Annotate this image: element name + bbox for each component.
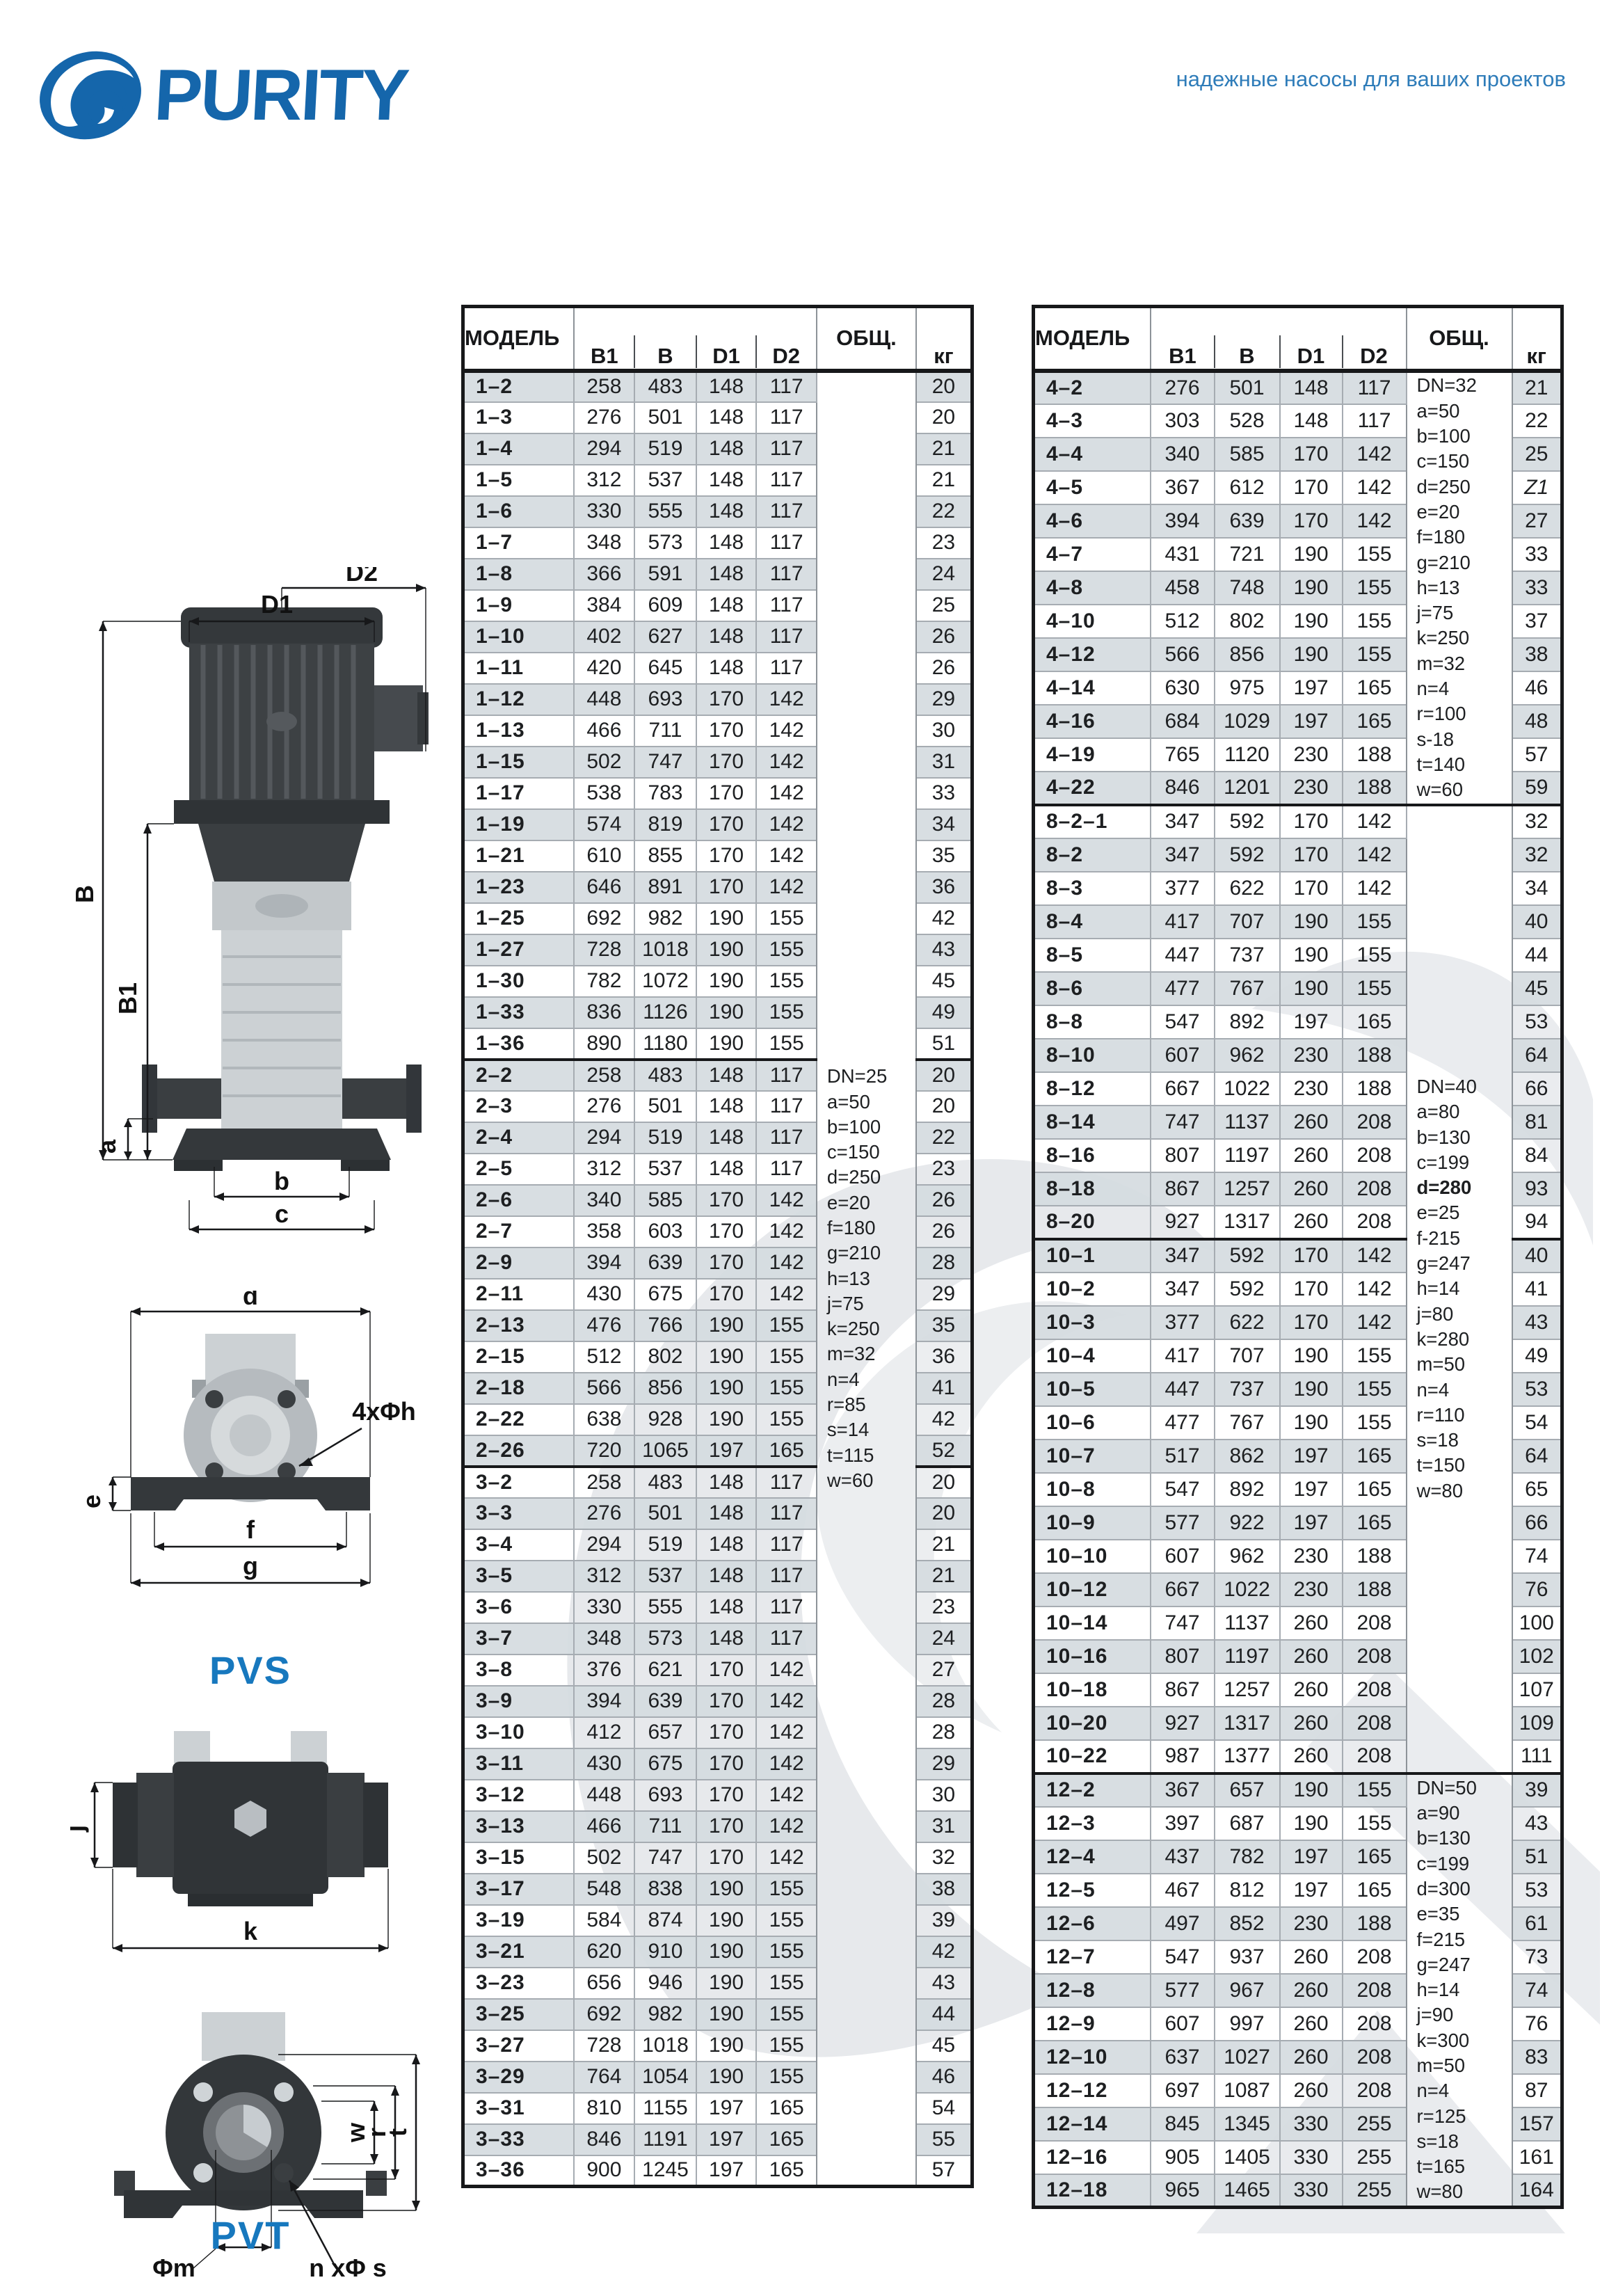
b-cell: 639 <box>1215 504 1280 538</box>
notes-line: k=250 <box>1417 625 1512 651</box>
d2-cell: 117 <box>756 590 817 621</box>
header-kg: кг <box>1512 307 1562 371</box>
kg-cell: 64 <box>1512 1039 1562 1072</box>
model-cell: 1–17 <box>463 778 574 809</box>
kg-cell: 28 <box>916 1247 972 1279</box>
obsh-notes-cell: DN=40a=80b=130c=199d=280e=25f-215g=247h=… <box>1407 805 1512 1773</box>
kg-cell: 25 <box>1512 438 1562 471</box>
kg-cell: 53 <box>1512 1005 1562 1039</box>
d1-cell: 170 <box>696 872 757 903</box>
kg-cell: 49 <box>916 997 972 1028</box>
d2-cell: 142 <box>756 840 817 872</box>
d2-cell: 155 <box>756 934 817 966</box>
model-cell: 8–10 <box>1034 1039 1151 1072</box>
kg-cell: 100 <box>1512 1607 1562 1640</box>
kg-cell: 87 <box>1512 2074 1562 2107</box>
d2-cell: 155 <box>756 997 817 1028</box>
d1-cell: 170 <box>696 840 757 872</box>
b-cell: 1465 <box>1215 2174 1280 2208</box>
d2-cell: 117 <box>1343 404 1407 438</box>
d2-cell: 155 <box>756 1310 817 1341</box>
kg-cell: 21 <box>916 1561 972 1592</box>
d2-cell: 142 <box>756 1185 817 1216</box>
notes-line: c=150 <box>1417 449 1512 474</box>
d2-cell: 142 <box>1343 872 1407 905</box>
d1-cell: 148 <box>696 433 757 465</box>
d1-cell: 260 <box>1280 1206 1343 1239</box>
kg-cell: 23 <box>916 1154 972 1185</box>
b-cell: 855 <box>634 840 696 872</box>
b1-cell: 412 <box>574 1717 635 1748</box>
notes-line: d=250 <box>827 1165 915 1190</box>
d1-cell: 230 <box>1280 1540 1343 1573</box>
table-row: 8–2–1347592170142DN=40a=80b=130c=199d=28… <box>1034 805 1562 838</box>
d1-cell: 148 <box>696 653 757 684</box>
notes-line: b=130 <box>1417 1826 1512 1851</box>
d1-cell: 170 <box>1280 838 1343 872</box>
d2-cell: 255 <box>1343 2174 1407 2208</box>
b1-cell: 566 <box>574 1373 635 1404</box>
b1-cell: 728 <box>574 934 635 966</box>
b-cell: 975 <box>1215 671 1280 705</box>
notes-line: s=18 <box>1417 1428 1512 1453</box>
model-cell: 1–30 <box>463 966 574 997</box>
header-b: B <box>634 307 696 371</box>
notes-line: r=125 <box>1417 2104 1512 2129</box>
notes-line: k=280 <box>1417 1327 1512 1352</box>
kg-cell: 48 <box>1512 705 1562 738</box>
model-cell: 2–9 <box>463 1247 574 1279</box>
model-cell: 3–17 <box>463 1874 574 1905</box>
d1-cell: 230 <box>1280 738 1343 772</box>
d1-cell: 190 <box>696 2062 757 2093</box>
d1-cell: 170 <box>696 1216 757 1247</box>
kg-cell: 29 <box>916 1279 972 1310</box>
b-cell: 622 <box>1215 872 1280 905</box>
d1-cell: 170 <box>696 747 757 778</box>
kg-cell: 38 <box>1512 638 1562 671</box>
b1-cell: 684 <box>1151 705 1215 738</box>
kg-cell: 61 <box>1512 1907 1562 1940</box>
b-cell: 1054 <box>634 2062 696 2093</box>
header-d1: D1 <box>696 307 757 371</box>
model-cell: 4–7 <box>1034 538 1151 571</box>
d2-cell: 142 <box>756 1717 817 1748</box>
b1-cell: 276 <box>574 402 635 433</box>
b1-cell: 807 <box>1151 1640 1215 1673</box>
d1-cell: 148 <box>696 1529 757 1561</box>
kg-cell: 43 <box>916 1968 972 1999</box>
d2-cell: 208 <box>1343 1974 1407 2007</box>
d2-cell: 165 <box>1343 705 1407 738</box>
kg-cell: 53 <box>1512 1874 1562 1907</box>
kg-cell: 30 <box>916 715 972 747</box>
b1-cell: 965 <box>1151 2174 1215 2208</box>
b-cell: 982 <box>634 1999 696 2030</box>
model-cell: 10–7 <box>1034 1440 1151 1473</box>
kg-cell: 36 <box>916 872 972 903</box>
b-cell: 1155 <box>634 2093 696 2124</box>
d2-cell: 208 <box>1343 2074 1407 2107</box>
b-cell: 946 <box>634 1968 696 1999</box>
kg-cell: 59 <box>1512 772 1562 805</box>
d2-cell: 142 <box>1343 1239 1407 1273</box>
b-cell: 1317 <box>1215 1206 1280 1239</box>
b1-cell: 340 <box>574 1185 635 1216</box>
kg-cell: 45 <box>916 966 972 997</box>
b1-cell: 458 <box>1151 571 1215 605</box>
header-row: МОДЕЛЬ B1 B D1 D2 ОБЩ. кг <box>1034 307 1562 371</box>
kg-cell: 43 <box>916 934 972 966</box>
d1-cell: 170 <box>1280 471 1343 504</box>
b1-cell: 466 <box>574 715 635 747</box>
model-cell: 3–15 <box>463 1842 574 1874</box>
kg-cell: 111 <box>1512 1740 1562 1773</box>
b1-cell: 584 <box>574 1905 635 1936</box>
kg-cell: 20 <box>916 402 972 433</box>
b1-cell: 377 <box>1151 872 1215 905</box>
b-cell: 483 <box>634 1467 696 1498</box>
kg-cell: 20 <box>916 1498 972 1529</box>
d2-cell: 165 <box>1343 671 1407 705</box>
model-cell: 3–12 <box>463 1780 574 1811</box>
b1-cell: 547 <box>1151 1473 1215 1506</box>
model-cell: 1–25 <box>463 903 574 934</box>
model-cell: 12–3 <box>1034 1807 1151 1840</box>
b-cell: 592 <box>1215 838 1280 872</box>
d1-cell: 190 <box>696 966 757 997</box>
d2-cell: 155 <box>756 1404 817 1435</box>
b1-cell: 347 <box>1151 805 1215 838</box>
model-cell: 10–6 <box>1034 1406 1151 1440</box>
kg-cell: 102 <box>1512 1640 1562 1673</box>
model-cell: 8–2–1 <box>1034 805 1151 838</box>
kg-cell: 51 <box>916 1028 972 1060</box>
purity-logo-icon <box>36 43 147 148</box>
kg-cell: 57 <box>1512 738 1562 772</box>
header-b1: B1 <box>1151 307 1215 371</box>
b1-cell: 497 <box>1151 1907 1215 1940</box>
header-d2: D2 <box>756 307 817 371</box>
notes-line: j=75 <box>1417 600 1512 625</box>
model-cell: 4–19 <box>1034 738 1151 772</box>
d2-cell: 117 <box>756 465 817 496</box>
b1-cell: 294 <box>574 433 635 465</box>
notes-line: t=115 <box>827 1443 915 1468</box>
kg-cell: 28 <box>916 1686 972 1717</box>
d1-cell: 190 <box>1280 1807 1343 1840</box>
model-cell: 1–12 <box>463 684 574 715</box>
b-cell: 922 <box>1215 1506 1280 1540</box>
b1-cell: 517 <box>1151 1440 1215 1473</box>
dim-c-label: c <box>275 1199 289 1228</box>
d2-cell: 142 <box>756 778 817 809</box>
notes-line: m=32 <box>1417 651 1512 676</box>
pump-side-view-diagram: D2 D1 B B1 a b c <box>70 567 431 1284</box>
model-cell: 1–8 <box>463 559 574 590</box>
d1-cell: 170 <box>696 1717 757 1748</box>
d2-cell: 117 <box>756 371 817 402</box>
b-cell: 693 <box>634 684 696 715</box>
notes-line: a=50 <box>827 1090 915 1115</box>
d2-cell: 208 <box>1343 1206 1407 1239</box>
b-cell: 519 <box>634 433 696 465</box>
b-cell: 747 <box>634 1842 696 1874</box>
b1-cell: 347 <box>1151 1239 1215 1273</box>
b1-cell: 502 <box>574 747 635 778</box>
d1-cell: 197 <box>696 2124 757 2155</box>
kg-cell: 39 <box>1512 1773 1562 1807</box>
notes-line: b=100 <box>1417 424 1512 449</box>
d2-cell: 155 <box>756 903 817 934</box>
b1-cell: 638 <box>574 1404 635 1435</box>
model-cell: 12–8 <box>1034 1974 1151 2007</box>
d2-cell: 165 <box>756 1435 817 1467</box>
model-cell: 10–10 <box>1034 1540 1151 1573</box>
notes-line: n=4 <box>1417 2078 1512 2103</box>
notes-line: n=4 <box>1417 676 1512 701</box>
b-cell: 592 <box>1215 1273 1280 1306</box>
b1-cell: 807 <box>1151 1139 1215 1172</box>
kg-cell: 21 <box>1512 371 1562 404</box>
b-cell: 693 <box>634 1780 696 1811</box>
d2-cell: 117 <box>756 653 817 684</box>
kg-cell: 34 <box>1512 872 1562 905</box>
d1-cell: 148 <box>696 1091 757 1122</box>
b-cell: 537 <box>634 1561 696 1592</box>
kg-cell: 84 <box>1512 1139 1562 1172</box>
kg-cell: 73 <box>1512 1940 1562 1974</box>
notes-line: f=215 <box>1417 1927 1512 1952</box>
b1-cell: 447 <box>1151 1373 1215 1406</box>
model-cell: 3–3 <box>463 1498 574 1529</box>
model-cell: 3–29 <box>463 2062 574 2093</box>
model-cell: 8–8 <box>1034 1005 1151 1039</box>
b-cell: 537 <box>634 465 696 496</box>
b-cell: 721 <box>1215 538 1280 571</box>
model-cell: 8–4 <box>1034 905 1151 939</box>
d1-cell: 148 <box>696 1561 757 1592</box>
b1-cell: 846 <box>574 2124 635 2155</box>
d2-cell: 188 <box>1343 738 1407 772</box>
model-cell: 4–5 <box>1034 471 1151 504</box>
model-cell: 1–33 <box>463 997 574 1028</box>
d2-cell: 188 <box>1343 772 1407 805</box>
d1-cell: 190 <box>1280 1373 1343 1406</box>
b-cell: 1345 <box>1215 2107 1280 2141</box>
kg-cell: 33 <box>916 778 972 809</box>
b-cell: 1317 <box>1215 1707 1280 1740</box>
b-cell: 711 <box>634 1811 696 1842</box>
notes-line: w=80 <box>1417 1478 1512 1504</box>
b1-cell: 867 <box>1151 1673 1215 1707</box>
dim-k-label: k <box>243 1917 258 1945</box>
model-cell: 3–13 <box>463 1811 574 1842</box>
d2-cell: 142 <box>1343 805 1407 838</box>
b1-cell: 417 <box>1151 1339 1215 1373</box>
d2-cell: 208 <box>1343 1139 1407 1172</box>
b-cell: 707 <box>1215 1339 1280 1373</box>
model-cell: 12–14 <box>1034 2107 1151 2141</box>
model-cell: 4–3 <box>1034 404 1151 438</box>
notes-line: c=199 <box>1417 1150 1512 1175</box>
model-cell: 2–26 <box>463 1435 574 1467</box>
model-cell: 12–16 <box>1034 2141 1151 2174</box>
d2-cell: 155 <box>1343 538 1407 571</box>
b1-cell: 276 <box>574 1091 635 1122</box>
b1-cell: 747 <box>1151 1106 1215 1139</box>
dim-e-label: e <box>77 1494 106 1508</box>
d1-cell: 260 <box>1280 1974 1343 2007</box>
d2-cell: 117 <box>756 1561 817 1592</box>
b1-cell: 538 <box>574 778 635 809</box>
b-cell: 1197 <box>1215 1640 1280 1673</box>
model-cell: 2–4 <box>463 1122 574 1154</box>
d2-cell: 117 <box>756 1154 817 1185</box>
kg-cell: 25 <box>916 590 972 621</box>
b1-cell: 607 <box>1151 2007 1215 2041</box>
b-cell: 782 <box>1215 1840 1280 1874</box>
d2-cell: 117 <box>756 1623 817 1655</box>
notes-line: w=80 <box>1417 2179 1512 2204</box>
b1-cell: 620 <box>574 1936 635 1968</box>
b1-cell: 402 <box>574 621 635 653</box>
model-cell: 4–12 <box>1034 638 1151 671</box>
model-cell: 10–16 <box>1034 1640 1151 1673</box>
kg-cell: 30 <box>916 1780 972 1811</box>
d2-cell: 208 <box>1343 1106 1407 1139</box>
b1-cell: 312 <box>574 465 635 496</box>
b-cell: 852 <box>1215 1907 1280 1940</box>
model-cell: 1–36 <box>463 1028 574 1060</box>
b1-cell: 258 <box>574 371 635 402</box>
d1-cell: 197 <box>696 2093 757 2124</box>
d1-cell: 190 <box>1280 939 1343 972</box>
b1-cell: 348 <box>574 1623 635 1655</box>
b1-cell: 420 <box>574 653 635 684</box>
notes-line: t=150 <box>1417 1453 1512 1478</box>
notes-line: j=80 <box>1417 1302 1512 1327</box>
d2-cell: 117 <box>756 496 817 527</box>
model-cell: 1–13 <box>463 715 574 747</box>
pump-body-side-flanges-diagram: j k <box>70 1719 431 1976</box>
model-cell: 2–5 <box>463 1154 574 1185</box>
model-cell: 10–9 <box>1034 1506 1151 1540</box>
b-cell: 483 <box>634 371 696 402</box>
kg-cell: 32 <box>1512 805 1562 838</box>
d1-cell: 148 <box>696 1498 757 1529</box>
b1-cell: 312 <box>574 1561 635 1592</box>
b-cell: 609 <box>634 590 696 621</box>
b1-cell: 890 <box>574 1028 635 1060</box>
kg-cell: 33 <box>1512 571 1562 605</box>
d1-cell: 197 <box>1280 1473 1343 1506</box>
model-cell: 2–7 <box>463 1216 574 1247</box>
b-cell: 627 <box>634 621 696 653</box>
d2-cell: 188 <box>1343 1573 1407 1607</box>
kg-cell: 46 <box>1512 671 1562 705</box>
b1-cell: 548 <box>574 1874 635 1905</box>
model-cell: 3–5 <box>463 1561 574 1592</box>
b1-cell: 347 <box>1151 838 1215 872</box>
d1-cell: 190 <box>1280 605 1343 638</box>
kg-cell: 35 <box>916 840 972 872</box>
notes-line: g=247 <box>1417 1952 1512 1977</box>
b1-cell: 905 <box>1151 2141 1215 2174</box>
kg-cell: 39 <box>916 1905 972 1936</box>
d2-cell: 155 <box>756 1999 817 2030</box>
model-cell: 3–19 <box>463 1905 574 1936</box>
b1-cell: 276 <box>574 1498 635 1529</box>
d2-cell: 117 <box>756 1592 817 1623</box>
dim-a-label: a <box>93 1139 121 1154</box>
b-cell: 982 <box>634 903 696 934</box>
d1-cell: 148 <box>696 465 757 496</box>
d1-cell: 190 <box>1280 571 1343 605</box>
b1-cell: 836 <box>574 997 635 1028</box>
b1-cell: 692 <box>574 1999 635 2030</box>
d2-cell: 142 <box>756 1655 817 1686</box>
b-cell: 639 <box>634 1686 696 1717</box>
dim-t-label: t <box>383 2128 412 2137</box>
b1-cell: 728 <box>574 2030 635 2062</box>
b-cell: 1029 <box>1215 705 1280 738</box>
b1-cell: 697 <box>1151 2074 1215 2107</box>
model-cell: 1–15 <box>463 747 574 778</box>
d1-cell: 260 <box>1280 1707 1343 1740</box>
b1-cell: 377 <box>1151 1306 1215 1339</box>
model-cell: 1–9 <box>463 590 574 621</box>
d2-cell: 165 <box>1343 1005 1407 1039</box>
d2-cell: 208 <box>1343 1707 1407 1740</box>
notes-line: DN=40 <box>1417 1074 1512 1099</box>
dimensions-table-right: МОДЕЛЬ B1 B D1 D2 ОБЩ. кг 4–227650114811… <box>1032 305 1564 2209</box>
kg-cell: 76 <box>1512 1573 1562 1607</box>
d2-cell: 155 <box>756 2030 817 2062</box>
b-cell: 675 <box>634 1748 696 1780</box>
pvs-flange-view-diagram: d e 4xΦh f g <box>70 1291 431 1618</box>
b1-cell: 448 <box>574 1780 635 1811</box>
header-model: МОДЕЛЬ <box>463 307 574 371</box>
d1-cell: 148 <box>696 1623 757 1655</box>
b-cell: 737 <box>1215 939 1280 972</box>
d1-cell: 170 <box>1280 1306 1343 1339</box>
model-cell: 1–4 <box>463 433 574 465</box>
kg-cell: 26 <box>916 653 972 684</box>
model-cell: 10–12 <box>1034 1573 1151 1607</box>
d1-cell: 197 <box>1280 1506 1343 1540</box>
b1-cell: 477 <box>1151 972 1215 1005</box>
model-cell: 2–18 <box>463 1373 574 1404</box>
d1-cell: 148 <box>1280 371 1343 404</box>
model-cell: 4–8 <box>1034 571 1151 605</box>
dim-d2-label: D2 <box>346 567 378 587</box>
model-cell: 8–18 <box>1034 1172 1151 1206</box>
kg-cell: 53 <box>1512 1373 1562 1406</box>
d2-cell: 142 <box>756 1279 817 1310</box>
b1-cell: 312 <box>574 1154 635 1185</box>
b-cell: 621 <box>634 1655 696 1686</box>
b1-cell: 347 <box>1151 1273 1215 1306</box>
kg-cell: 83 <box>1512 2041 1562 2074</box>
notes-line: a=80 <box>1417 1099 1512 1124</box>
notes-line: s=18 <box>1417 2129 1512 2154</box>
kg-cell: 164 <box>1512 2174 1562 2208</box>
b-cell: 711 <box>634 715 696 747</box>
d1-cell: 330 <box>1280 2107 1343 2141</box>
notes-line: h=13 <box>1417 575 1512 600</box>
pvs-series-label: PVS <box>70 1648 431 1693</box>
